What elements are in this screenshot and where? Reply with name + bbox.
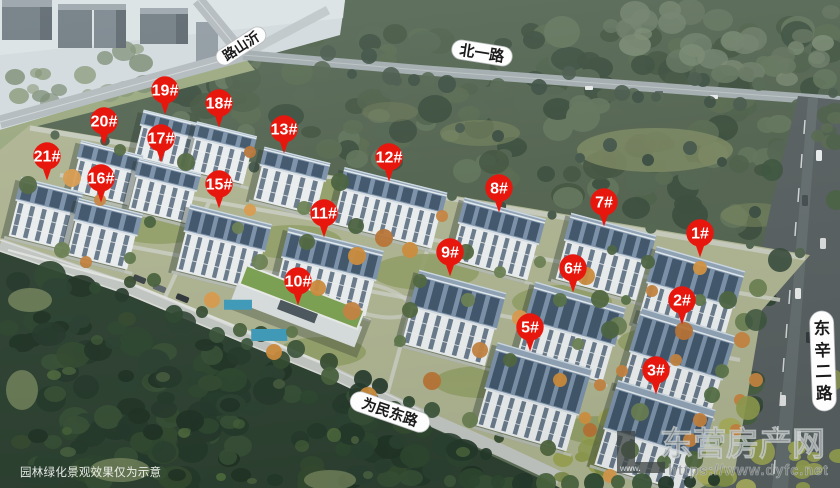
svg-text:6#: 6# [564,260,582,277]
svg-text:2#: 2# [673,292,691,309]
svg-text:13#: 13# [271,121,298,138]
svg-text:3#: 3# [647,362,665,379]
svg-text:8#: 8# [490,180,508,197]
svg-text:17#: 17# [148,130,175,147]
svg-text:16#: 16# [88,170,115,187]
svg-text:辛: 辛 [814,340,831,361]
svg-text:12#: 12# [376,149,403,166]
svg-text:二: 二 [815,363,832,382]
svg-text:18#: 18# [206,95,233,112]
svg-text:www.: www. [619,464,641,473]
svg-text:11#: 11# [311,205,337,222]
svg-text:5#: 5# [521,319,539,336]
svg-text:19#: 19# [152,82,179,99]
svg-text:10#: 10# [285,273,312,290]
svg-text:路: 路 [816,383,834,404]
svg-text:7#: 7# [595,194,613,211]
svg-text:东营房产网: 东营房产网 [660,425,825,462]
svg-text:15#: 15# [206,176,233,193]
svg-text:东: 东 [813,318,830,339]
svg-text:https://www.dyfc.net: https://www.dyfc.net [668,463,828,479]
svg-text:园林绿化景观效果仅为示意: 园林绿化景观效果仅为示意 [20,465,161,479]
svg-text:20#: 20# [91,113,118,130]
svg-text:21#: 21# [34,148,61,165]
svg-text:9#: 9# [441,244,459,261]
svg-text:1#: 1# [691,225,709,242]
